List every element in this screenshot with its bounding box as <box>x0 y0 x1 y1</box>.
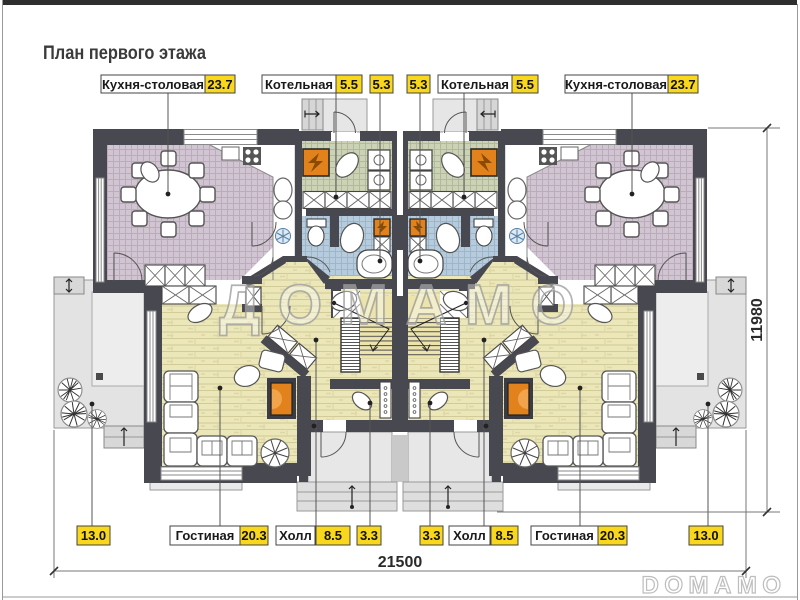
svg-text:13.0: 13.0 <box>81 528 106 543</box>
svg-text:8.5: 8.5 <box>324 528 342 543</box>
svg-text:11980: 11980 <box>749 298 766 342</box>
svg-text:Котельная: Котельная <box>265 77 333 92</box>
svg-text:Гостиная: Гостиная <box>535 528 594 543</box>
svg-text:План первого этажа: План первого этажа <box>43 43 206 64</box>
svg-text:13.0: 13.0 <box>693 528 718 543</box>
svg-text:21500: 21500 <box>378 554 423 571</box>
svg-text:Гостиная: Гостиная <box>176 528 235 543</box>
svg-text:Холл: Холл <box>453 528 486 543</box>
svg-text:23.7: 23.7 <box>207 77 232 92</box>
svg-text:DOMAMO: DOMAMO <box>642 572 787 599</box>
svg-text:Кухня-столовая: Кухня-столовая <box>102 77 204 92</box>
svg-text:5.5: 5.5 <box>516 77 534 92</box>
svg-text:ДОМАМО: ДОМАМО <box>219 273 592 337</box>
svg-text:23.7: 23.7 <box>670 77 695 92</box>
svg-text:Кухня-столовая: Кухня-столовая <box>565 77 667 92</box>
svg-text:3.3: 3.3 <box>422 528 440 543</box>
svg-text:Холл: Холл <box>279 528 312 543</box>
svg-text:20.3: 20.3 <box>241 528 266 543</box>
svg-text:20.3: 20.3 <box>600 528 625 543</box>
svg-text:5.3: 5.3 <box>409 77 427 92</box>
svg-text:5.5: 5.5 <box>340 77 358 92</box>
svg-text:Котельная: Котельная <box>441 77 509 92</box>
svg-text:5.3: 5.3 <box>372 77 390 92</box>
svg-text:8.5: 8.5 <box>495 528 513 543</box>
svg-text:3.3: 3.3 <box>360 528 378 543</box>
